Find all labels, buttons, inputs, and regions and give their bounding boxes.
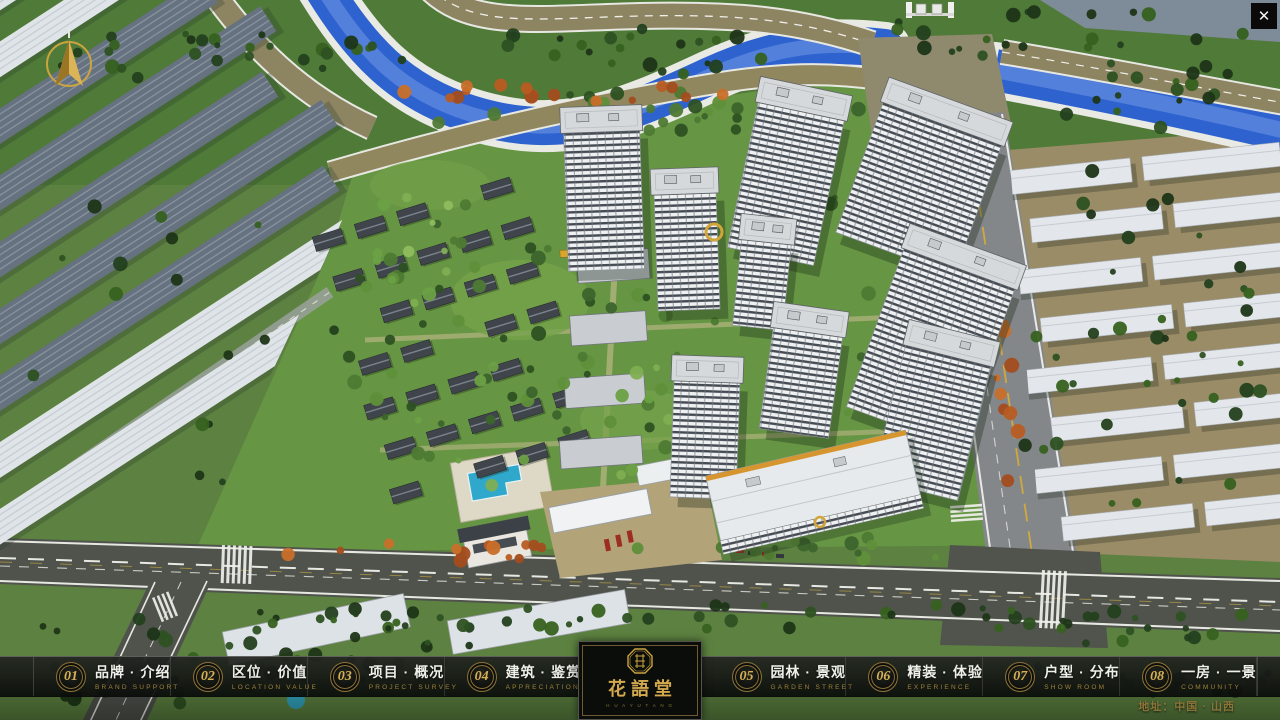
nav-label-zh: 区位 · 价值 bbox=[232, 662, 307, 682]
nav-label-en: COMMUNITY bbox=[1181, 684, 1256, 691]
nav-label-zh: 一房 · 一景 bbox=[1181, 662, 1256, 682]
nav-label-zh: 品牌 · 介绍 bbox=[95, 662, 170, 682]
address-text: 地址：中国 · 山西 bbox=[1138, 698, 1235, 714]
nav-label-en: GARDEN STREET bbox=[771, 684, 846, 691]
nav-label-en: LOCATION VALUE bbox=[232, 684, 307, 691]
nav-label-en: SHOW ROOM bbox=[1044, 684, 1119, 691]
nav-label-zh: 户型 · 分布 bbox=[1044, 662, 1119, 682]
nav-number-badge: 06 bbox=[868, 662, 898, 692]
logo-seal-icon bbox=[627, 648, 653, 674]
project-tagline: H U A Y U T A N G bbox=[606, 703, 674, 708]
nav-label-en: EXPERIENCE bbox=[907, 684, 982, 691]
nav-label-en: APPRECIATION bbox=[506, 684, 581, 691]
nav-label-zh: 园林 · 景观 bbox=[771, 662, 846, 682]
nav-label-en: PROJECT SURVEY bbox=[369, 684, 444, 691]
close-icon: ✕ bbox=[1258, 7, 1271, 25]
nav-number-badge: 05 bbox=[732, 662, 762, 692]
nav-item-location[interactable]: 02 区位 · 价值LOCATION VALUE bbox=[171, 657, 308, 696]
nav-number-badge: 02 bbox=[193, 662, 223, 692]
nav-label-zh: 建筑 · 鉴赏 bbox=[506, 662, 581, 682]
presentation-window: ✕ 01 品牌 · 介绍BRAND SUPPORT 02 区位 · 价值LOCA… bbox=[0, 0, 1280, 720]
nav-number-badge: 04 bbox=[467, 662, 497, 692]
nav-item-interior[interactable]: 06 精装 · 体验EXPERIENCE bbox=[846, 657, 983, 696]
masterplan-3d-view[interactable] bbox=[0, 0, 1280, 720]
project-logo-plaque[interactable]: 花語堂 H U A Y U T A N G bbox=[578, 641, 702, 720]
nav-item-floorplan[interactable]: 07 户型 · 分布SHOW ROOM bbox=[983, 657, 1120, 696]
nav-number-badge: 01 bbox=[56, 662, 86, 692]
nav-number-badge: 03 bbox=[330, 662, 360, 692]
compass-icon bbox=[40, 28, 98, 94]
nav-number-badge: 07 bbox=[1005, 662, 1035, 692]
navbar-edge bbox=[1257, 657, 1280, 696]
nav-number-badge: 08 bbox=[1142, 662, 1172, 692]
navbar-edge bbox=[0, 657, 34, 696]
project-title: 花語堂 bbox=[603, 675, 677, 701]
nav-item-project[interactable]: 03 项目 · 概况PROJECT SURVEY bbox=[308, 657, 445, 696]
nav-label-en: BRAND SUPPORT bbox=[95, 684, 170, 691]
nav-label-zh: 精装 · 体验 bbox=[907, 662, 982, 682]
close-button[interactable]: ✕ bbox=[1251, 3, 1277, 29]
nav-item-brand[interactable]: 01 品牌 · 介绍BRAND SUPPORT bbox=[34, 657, 171, 696]
nav-item-garden[interactable]: 05 园林 · 景观GARDEN STREET bbox=[710, 657, 847, 696]
nav-label-zh: 项目 · 概况 bbox=[369, 662, 444, 682]
nav-item-architecture[interactable]: 04 建筑 · 鉴赏APPRECIATION bbox=[445, 657, 582, 696]
nav-item-views[interactable]: 08 一房 · 一景COMMUNITY bbox=[1120, 657, 1257, 696]
